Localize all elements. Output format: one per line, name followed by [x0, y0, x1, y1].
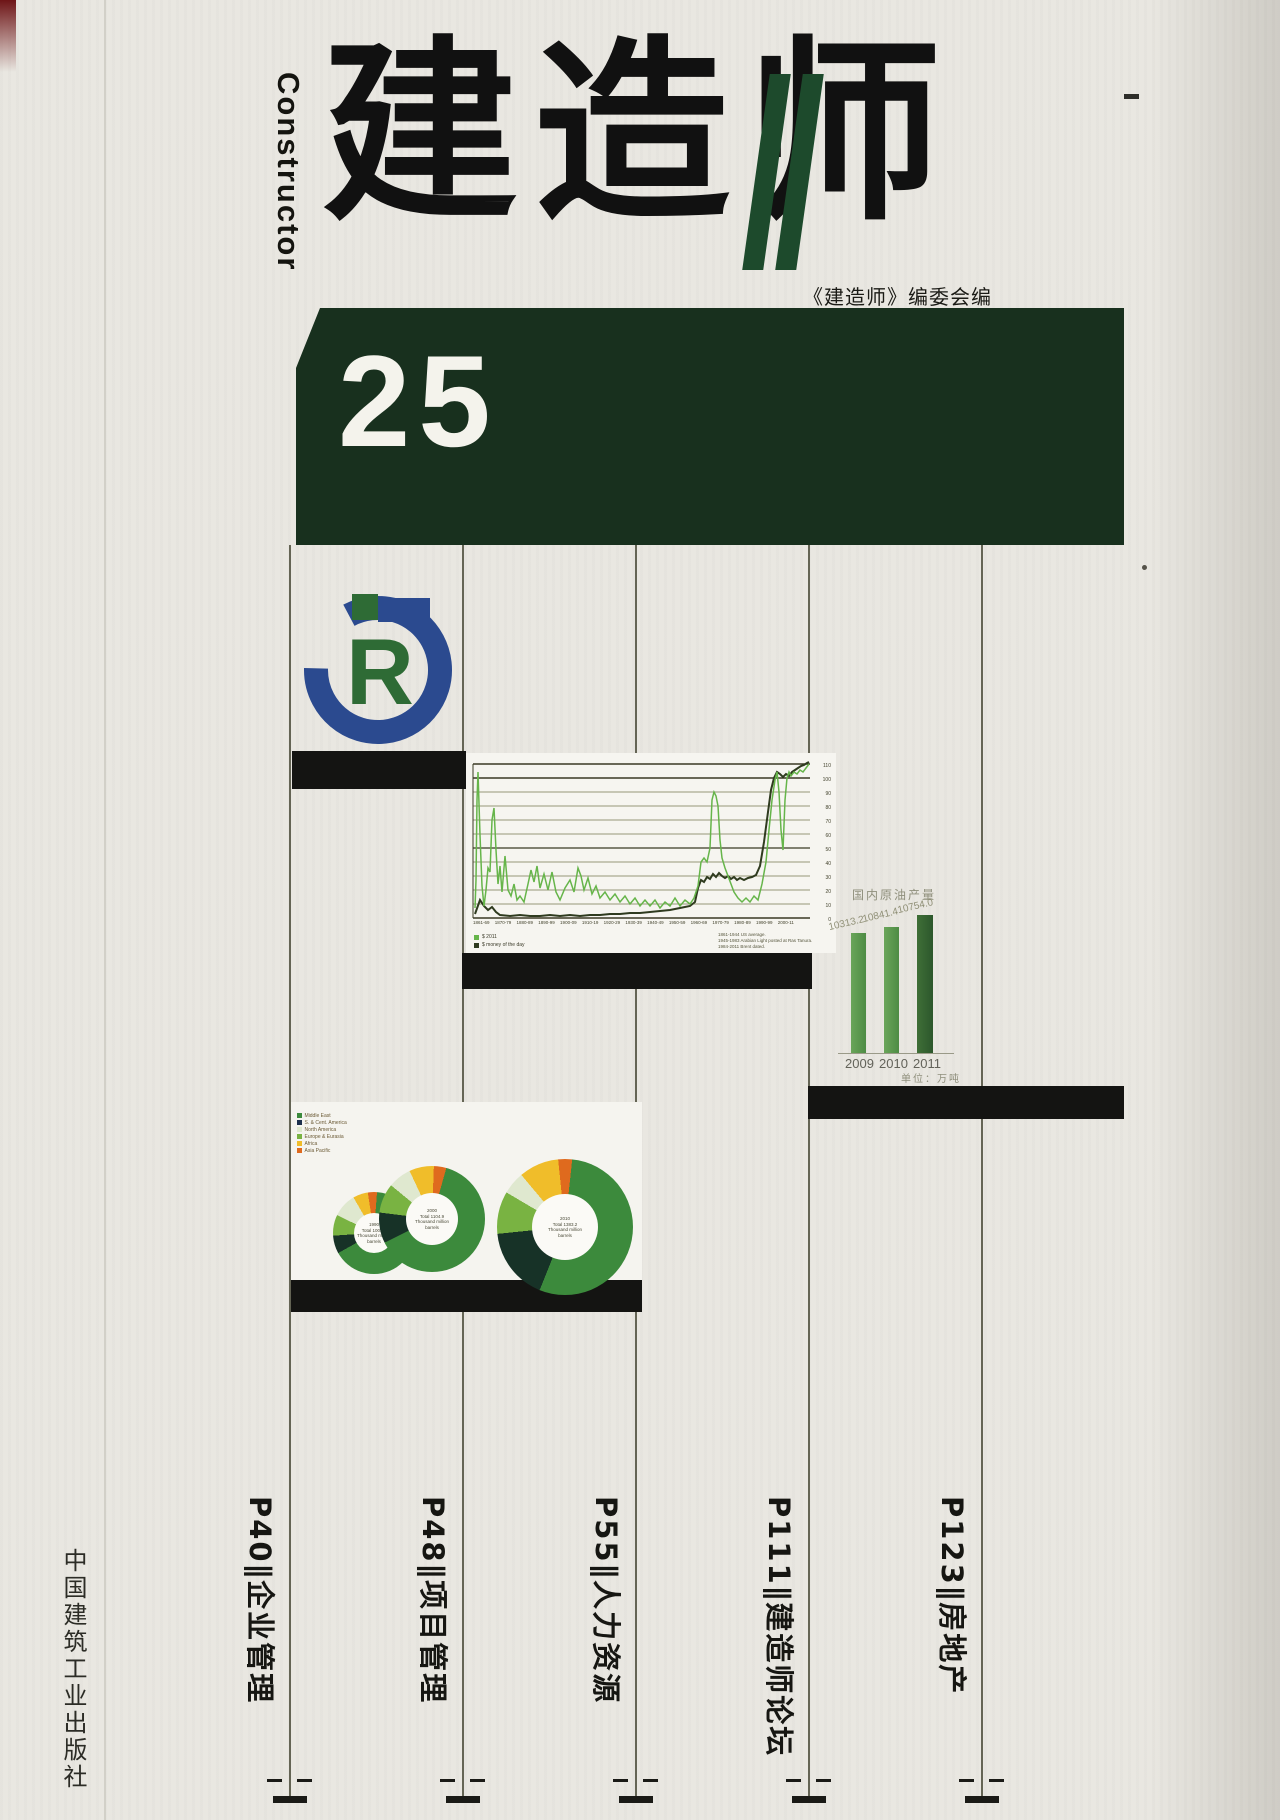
series-money-of-day	[475, 762, 809, 916]
scan-artifact-red-streak	[0, 0, 16, 72]
chart-annotations: 1861-1944 US average. 1945-1983 Arabian …	[718, 932, 812, 950]
pie-legend: Middle East S. & Cent. America North Ame…	[297, 1112, 347, 1154]
column-rule	[808, 545, 810, 1798]
registration-mark	[619, 1796, 653, 1803]
page-title: 建造师	[322, 36, 958, 232]
registration-mark	[989, 1779, 1004, 1782]
registration-mark	[273, 1796, 307, 1803]
registration-mark	[643, 1779, 658, 1782]
legend-label: S. & Cent. America	[305, 1120, 347, 1126]
legend-label: Africa	[305, 1141, 318, 1147]
legend-swatch-icon	[297, 1113, 302, 1118]
registration-mark	[792, 1796, 826, 1803]
registration-mark	[959, 1779, 974, 1782]
series-usd-2011	[475, 764, 809, 908]
legend-label: Europe & Eurasia	[305, 1134, 344, 1140]
column-rule	[981, 545, 983, 1798]
bar-2011	[917, 915, 933, 1053]
toc-item-xiangmu-guanli: P48∥项目管理	[414, 1496, 456, 1704]
legend-swatch-icon	[474, 935, 479, 940]
toc-item-jianzaoshi-luntan: P111∥建造师论坛	[760, 1496, 802, 1757]
scan-artifact-dot	[1142, 565, 1147, 570]
cr-logo: R	[296, 570, 460, 756]
legend-swatch-icon	[297, 1134, 302, 1139]
editor-line: 《建造师》编委会编	[640, 281, 992, 310]
bar-chart-axis	[838, 1053, 954, 1054]
registration-mark	[446, 1796, 480, 1803]
registration-mark	[816, 1779, 831, 1782]
legend-label: Asia Pacific	[305, 1148, 331, 1154]
year-label: 2011	[913, 1056, 941, 1071]
toc-item-qiye-guanli: P40∥企业管理	[241, 1496, 283, 1704]
legend-swatch-icon	[297, 1120, 302, 1125]
registration-mark	[786, 1779, 801, 1782]
issue-banner: 25	[296, 308, 1124, 545]
separator-bar	[808, 1086, 1124, 1119]
registration-mark	[965, 1796, 999, 1803]
year-label: 2009	[845, 1056, 874, 1071]
separator-bar	[292, 751, 466, 789]
legend-swatch-icon	[297, 1148, 302, 1153]
publisher-name: 中国建筑工业出版社	[56, 1548, 91, 1791]
donut-2010: 2010 Total 1383.2 Thousand million barre…	[497, 1159, 633, 1295]
legend-swatch-icon	[297, 1141, 302, 1146]
bar-2009	[851, 933, 866, 1053]
bar-chart-title: 国内原油产量	[852, 886, 972, 903]
unit-label: 单位：万吨	[901, 1070, 961, 1085]
registration-mark	[613, 1779, 628, 1782]
book-cover: Constructor 建造师 《建造师》编委会编 25 R	[0, 0, 1280, 1820]
oil-price-line-chart: 110 100 90 80 70 60 50 40 30 20 10 0 186…	[466, 753, 836, 953]
scan-shadow-right	[1150, 0, 1280, 1820]
logo-notch	[352, 594, 378, 620]
donut-2000-center-label: 2000 Total 1104.9 Thousand million barre…	[406, 1193, 458, 1245]
y-axis-ticks: 110 100 90 80 70 60 50 40 30 20 10 0	[813, 759, 831, 927]
x-axis-ticks: 1861-69 1870-79 1880-89 1890-99 1900-09 …	[473, 920, 811, 925]
logo-r-letter: R	[346, 619, 414, 724]
legend-swatch-icon	[297, 1127, 302, 1132]
toc-item-fangdichan: P123∥房地产	[933, 1496, 975, 1695]
legend-item: $ 2011	[474, 933, 525, 941]
legend-label: $ money of the day	[482, 942, 525, 948]
scan-artifact-dash	[1124, 94, 1139, 99]
registration-mark	[297, 1779, 312, 1782]
english-title: Constructor	[270, 72, 306, 271]
toc-item-renli-ziyuan: P55∥人力资源	[587, 1496, 629, 1704]
bar-2010	[884, 927, 899, 1053]
reserves-pie-block: Middle East S. & Cent. America North Ame…	[291, 1102, 642, 1280]
registration-mark	[440, 1779, 455, 1782]
legend-label: Middle East	[305, 1113, 331, 1119]
chart-legend: $ 2011 $ money of the day	[474, 933, 525, 949]
legend-item: $ money of the day	[474, 941, 525, 949]
legend-label: $ 2011	[482, 934, 497, 940]
scan-edge-line	[104, 0, 106, 1820]
bar-value-label: 10841.4	[862, 906, 900, 925]
donut-2010-center-label: 2010 Total 1383.2 Thousand million barre…	[532, 1194, 598, 1260]
year-label: 2010	[879, 1056, 908, 1071]
legend-swatch-icon	[474, 943, 479, 948]
donut-2000: 2000 Total 1104.9 Thousand million barre…	[379, 1166, 485, 1272]
registration-mark	[267, 1779, 282, 1782]
separator-bar	[462, 953, 812, 989]
registration-mark	[470, 1779, 485, 1782]
legend-label: North America	[305, 1127, 337, 1133]
issue-number: 25	[338, 326, 499, 476]
